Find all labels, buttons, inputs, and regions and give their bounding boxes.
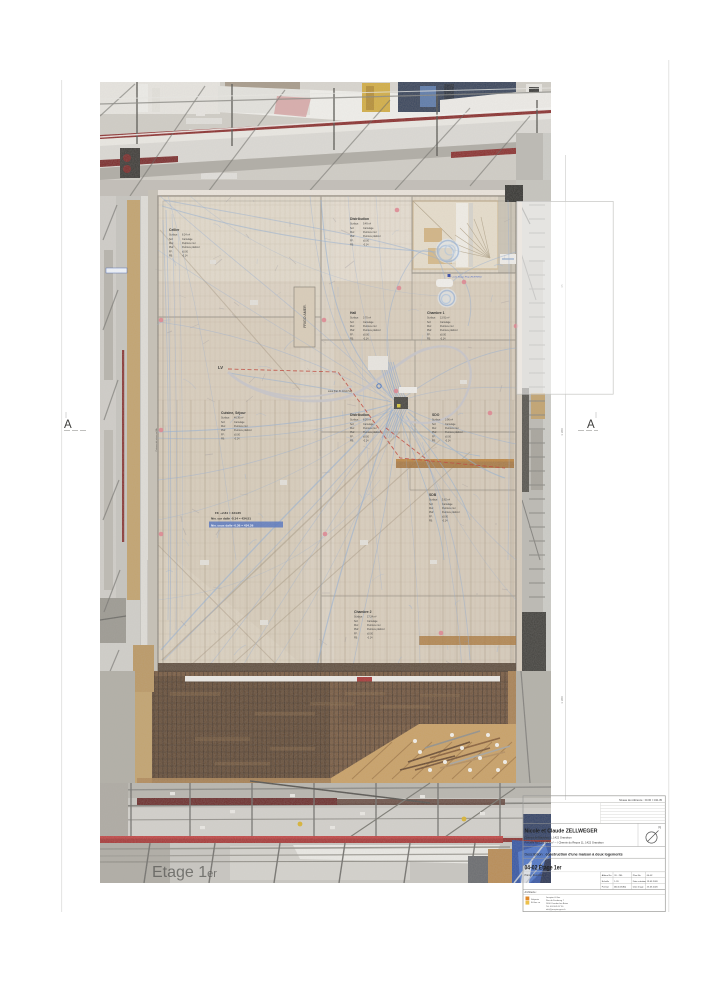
- svg-text:Peinture mur: Peinture mur: [363, 325, 377, 328]
- svg-text:Description : construction d': Description : construction d'une maison …: [525, 853, 623, 857]
- svg-text:13.91 m²: 13.91 m²: [440, 317, 450, 320]
- svg-text:+0.11 Brique Plsq LROP/5/H-ft: +0.11 Brique Plsq LROP/5/H-ft: [452, 276, 482, 279]
- svg-text:Carrelage: Carrelage: [363, 321, 374, 324]
- svg-text:Plaf:: Plaf:: [350, 329, 355, 332]
- svg-text:Sol:: Sol:: [354, 620, 358, 623]
- svg-text:FF:: FF:: [221, 433, 225, 436]
- svg-text:Surface:: Surface:: [350, 223, 359, 226]
- svg-text:Cellier: Cellier: [169, 228, 180, 232]
- svg-text:Carrelage: Carrelage: [440, 321, 451, 324]
- svg-text:FB:: FB:: [350, 244, 354, 247]
- svg-text:Peinture mur: Peinture mur: [442, 507, 456, 510]
- svg-text:-0.14: -0.14: [442, 520, 448, 523]
- svg-text:sous (bét. B. 10x17x2): sous (bét. B. 10x17x2): [328, 390, 352, 393]
- svg-text:Peinture plafond: Peinture plafond: [440, 329, 458, 332]
- svg-text:-0.14: -0.14: [445, 440, 451, 443]
- svg-text:FB:: FB:: [354, 637, 358, 640]
- svg-text:FB:: FB:: [350, 440, 354, 443]
- svg-text:Architecte :: Architecte :: [525, 891, 538, 894]
- svg-text:Carrelage: Carrelage: [445, 423, 456, 426]
- svg-text:Surface:: Surface:: [432, 419, 441, 422]
- svg-text:Chemin de Blanchon 1, 1422 Gra: Chemin de Blanchon 1, 1422 Grandson: [525, 836, 573, 840]
- svg-text:A0 (118x84): A0 (118x84): [614, 886, 626, 889]
- svg-text:Date tirage: Date tirage: [633, 886, 644, 889]
- svg-text:8.26 m²: 8.26 m²: [363, 419, 371, 422]
- svg-text:A: A: [587, 419, 595, 431]
- svg-text:Hall: Hall: [350, 311, 356, 315]
- svg-text:-0.14: -0.14: [363, 338, 369, 341]
- svg-text:Peinture mur: Peinture mur: [363, 231, 377, 234]
- svg-text:3.70 m²: 3.70 m²: [363, 317, 371, 320]
- svg-text:Echelle: Echelle: [602, 881, 610, 883]
- svg-text:Surface:: Surface:: [354, 616, 363, 619]
- svg-text:04-02 Étage 1er: 04-02 Étage 1er: [525, 862, 562, 871]
- svg-text:Caisson de store en BA: Caisson de store en BA: [155, 428, 158, 452]
- svg-text:25.03.2020: 25.03.2020: [647, 887, 659, 889]
- svg-text:Peinture mur: Peinture mur: [363, 427, 377, 430]
- svg-text:±0.00: ±0.00: [440, 333, 447, 336]
- svg-text:FB:: FB:: [350, 338, 354, 341]
- svg-text:-0.14: -0.14: [363, 440, 369, 443]
- svg-text:9.49 m²: 9.49 m²: [363, 223, 371, 226]
- svg-text:Mur:: Mur:: [429, 507, 434, 510]
- svg-text:5.62 m²: 5.62 m²: [442, 499, 450, 502]
- svg-text:±0.00: ±0.00: [363, 239, 370, 242]
- svg-text:±0.00: ±0.00: [442, 515, 449, 518]
- svg-text:FF:: FF:: [429, 515, 433, 518]
- svg-text:1 380: 1 380: [560, 696, 564, 704]
- svg-text:Tél. 024 445 37 90: Tél. 024 445 37 90: [546, 906, 564, 908]
- svg-text:FB:: FB:: [427, 338, 431, 341]
- svg-text:Peinture plafond: Peinture plafond: [442, 511, 460, 514]
- svg-text:Plaf:: Plaf:: [169, 246, 174, 249]
- svg-text:FB:: FB:: [169, 255, 173, 258]
- svg-text:Mur:: Mur:: [432, 427, 437, 430]
- svg-text:Chambre 1: Chambre 1: [427, 311, 445, 315]
- svg-text:Peinture plafond: Peinture plafond: [234, 429, 252, 432]
- svg-text:±0.00: ±0.00: [367, 632, 374, 635]
- svg-text:Peinture mur: Peinture mur: [182, 242, 196, 245]
- svg-text:B-Gex sa: B-Gex sa: [531, 902, 541, 904]
- svg-text:Surface:: Surface:: [350, 419, 359, 422]
- svg-text:Peinture plafond: Peinture plafond: [445, 431, 463, 434]
- svg-text:FF:: FF:: [427, 333, 431, 336]
- svg-text:Mur:: Mur:: [350, 325, 355, 328]
- svg-text:Mur:: Mur:: [221, 425, 226, 428]
- svg-text:-0.14: -0.14: [440, 338, 446, 341]
- svg-text:Peinture plafond: Peinture plafond: [367, 628, 385, 631]
- svg-text:FF:: FF:: [350, 239, 354, 242]
- svg-text:Plans : Exécution: Plans : Exécution: [525, 874, 545, 877]
- svg-text:Chambre 2: Chambre 2: [354, 610, 372, 614]
- svg-text:Sol:: Sol:: [432, 423, 436, 426]
- svg-text:A: A: [64, 419, 72, 431]
- svg-text:Niv. sur dalle -0.14 = 434.51: Niv. sur dalle -0.14 = 434.51: [211, 517, 251, 521]
- svg-text:FF:: FF:: [350, 333, 354, 336]
- svg-text:Distribution: Distribution: [350, 217, 369, 221]
- svg-text:FB:: FB:: [429, 520, 433, 523]
- svg-text:Plan No: Plan No: [633, 875, 642, 877]
- svg-text:Rue du Faubourg 7: Rue du Faubourg 7: [546, 899, 565, 902]
- svg-text:Peinture plafond: Peinture plafond: [182, 246, 200, 249]
- svg-text:04-02: 04-02: [647, 875, 653, 877]
- svg-text:Surface:: Surface:: [429, 499, 438, 502]
- svg-text:Date création: Date création: [633, 880, 647, 883]
- svg-text:Mur:: Mur:: [169, 242, 174, 245]
- svg-text:Plaf:: Plaf:: [427, 329, 432, 332]
- svg-text:Peinture mur: Peinture mur: [440, 325, 454, 328]
- svg-text:Carrelage: Carrelage: [367, 620, 378, 623]
- svg-text:Surface:: Surface:: [169, 234, 178, 237]
- svg-text:20 - ZEL: 20 - ZEL: [614, 875, 623, 877]
- svg-text:Sol:: Sol:: [429, 503, 433, 506]
- svg-text:FF. +2.84 = 434.65: FF. +2.84 = 434.65: [215, 511, 241, 515]
- svg-text:Niveau de référence : ±0.00 =: Niveau de référence : ±0.00 = 431.35: [619, 798, 662, 802]
- svg-text:Séquoia: Séquoia: [531, 899, 540, 901]
- svg-text:Sol:: Sol:: [427, 321, 431, 324]
- svg-text:Carrelage: Carrelage: [442, 503, 453, 506]
- svg-text:1400 Yverdon-les-Bains: 1400 Yverdon-les-Bains: [546, 902, 568, 905]
- svg-text:Mur:: Mur:: [350, 427, 355, 430]
- svg-text:Plaf:: Plaf:: [350, 235, 355, 238]
- svg-text:-0.14: -0.14: [363, 244, 369, 247]
- svg-text:Peinture plafond: Peinture plafond: [363, 329, 381, 332]
- svg-text:1 380: 1 380: [560, 428, 564, 436]
- svg-text:FRIGO AMER.: FRIGO AMER.: [303, 304, 307, 328]
- svg-text:±0.00: ±0.00: [363, 333, 370, 336]
- svg-text:Mur:: Mur:: [354, 624, 359, 627]
- svg-text:Nicole et Claude ZELLWEGER: Nicole et Claude ZELLWEGER: [525, 829, 598, 835]
- svg-text:LV: LV: [218, 365, 223, 370]
- svg-text:Parcelle No 124, ECA n° -- / C: Parcelle No 124, ECA n° -- / Chemin du R…: [525, 841, 605, 845]
- svg-text:8.24 m²: 8.24 m²: [182, 234, 190, 237]
- svg-text:Peinture mur: Peinture mur: [445, 427, 459, 430]
- svg-text:Peinture plafond: Peinture plafond: [363, 235, 381, 238]
- svg-text:Sol:: Sol:: [350, 423, 354, 426]
- svg-text:±0.00: ±0.00: [182, 250, 189, 253]
- svg-text:Mur:: Mur:: [427, 325, 432, 328]
- svg-text:Sol:: Sol:: [169, 238, 173, 241]
- svg-text:±0.00: ±0.00: [234, 433, 241, 436]
- svg-text:Sol:: Sol:: [221, 421, 225, 424]
- svg-text:Jacquier & Gex: Jacquier & Gex: [546, 896, 561, 899]
- svg-text:Carrelage: Carrelage: [234, 421, 245, 424]
- svg-text:-0.14: -0.14: [182, 255, 188, 258]
- svg-text:Carrelage: Carrelage: [363, 423, 374, 426]
- svg-text:Surface:: Surface:: [427, 317, 436, 320]
- svg-text:±0.00: ±0.00: [445, 435, 452, 438]
- svg-text:FB:: FB:: [221, 438, 225, 441]
- svg-text:Format: Format: [602, 886, 609, 889]
- svg-text:Carrelage: Carrelage: [363, 227, 374, 230]
- svg-text:Plaf:: Plaf:: [350, 431, 355, 434]
- svg-text:Plaf:: Plaf:: [429, 511, 434, 514]
- svg-text:Plaf:: Plaf:: [432, 431, 437, 434]
- svg-text:Sol:: Sol:: [350, 227, 354, 230]
- svg-text:Sol:: Sol:: [350, 321, 354, 324]
- svg-text:Surface:: Surface:: [221, 417, 230, 420]
- svg-text:-0.14: -0.14: [367, 637, 373, 640]
- svg-text:SDB: SDB: [429, 493, 437, 497]
- svg-text:Niv. sous dalle -0.36 = 434.26: Niv. sous dalle -0.36 = 434.26: [211, 523, 254, 527]
- svg-text:Peinture plafond: Peinture plafond: [363, 431, 381, 434]
- svg-text:Distribution: Distribution: [350, 413, 369, 417]
- svg-text:19.03.2020: 19.03.2020: [647, 881, 659, 883]
- svg-text:-0.14: -0.14: [234, 438, 240, 441]
- svg-text:Surface:: Surface:: [350, 317, 359, 320]
- svg-text:Mur:: Mur:: [350, 231, 355, 234]
- svg-text:Cuisine, Séjour: Cuisine, Séjour: [221, 411, 246, 415]
- svg-text:17.24 m²: 17.24 m²: [367, 616, 377, 619]
- svg-text:info@jacquier-gex.ch: info@jacquier-gex.ch: [546, 908, 566, 911]
- svg-text:Plaf:: Plaf:: [354, 628, 359, 631]
- svg-text:FF:: FF:: [432, 435, 436, 438]
- svg-text:Carrelage: Carrelage: [182, 238, 193, 241]
- svg-text:46.36 m²: 46.36 m²: [234, 417, 244, 420]
- svg-text:FF:: FF:: [169, 250, 173, 253]
- svg-text:Affaire No: Affaire No: [602, 874, 612, 877]
- svg-text:Plaf:: Plaf:: [221, 429, 226, 432]
- svg-text:FF:: FF:: [354, 632, 358, 635]
- svg-text:SDO: SDO: [432, 413, 440, 417]
- svg-text:±0.00: ±0.00: [363, 435, 370, 438]
- svg-text:FF:: FF:: [350, 435, 354, 438]
- svg-text:Peinture mur: Peinture mur: [367, 624, 381, 627]
- svg-text:Peinture mur: Peinture mur: [234, 425, 248, 428]
- svg-text:3.96 m²: 3.96 m²: [445, 419, 453, 422]
- svg-text:FB:: FB:: [432, 440, 436, 443]
